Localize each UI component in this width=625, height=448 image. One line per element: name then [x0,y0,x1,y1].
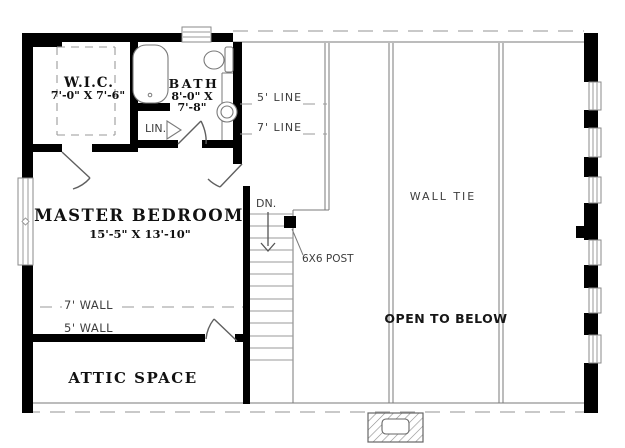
bath-room-label: BATH [169,76,220,91]
post-label: 6X6 POST [302,253,354,265]
window-symbol-top [182,27,211,42]
wall-tie-label: WALL TIE [410,190,476,203]
line5-label: 5' LINE [257,91,302,104]
open-to-below-label: OPEN TO BELOW [384,311,507,326]
master-room-label: MASTER BEDROOM [34,206,244,225]
chimney [368,413,423,442]
attic-room-label: ATTIC SPACE [67,369,197,387]
wall7-label: 7' WALL [64,298,113,312]
wic-dims-label: 7'-0" X 7'-6" [51,89,125,102]
window-symbol-left [18,178,33,265]
linen-label: LIN. [145,122,166,135]
master-dims-label: 15'-5" X 13'-10" [89,227,191,241]
line7-label: 7' LINE [257,121,302,134]
bathtub [133,45,168,103]
floor-plan-drawing: W.I.C. 7'-0" X 7'-6" BATH 8'-0" X 7'-8" … [0,0,625,448]
bath-dims-line2: 7'-8" [178,101,207,114]
down-label: DN. [256,197,276,210]
floor-plan-canvas: W.I.C. 7'-0" X 7'-6" BATH 8'-0" X 7'-8" … [0,0,625,448]
wall5-label: 5' WALL [64,321,113,335]
